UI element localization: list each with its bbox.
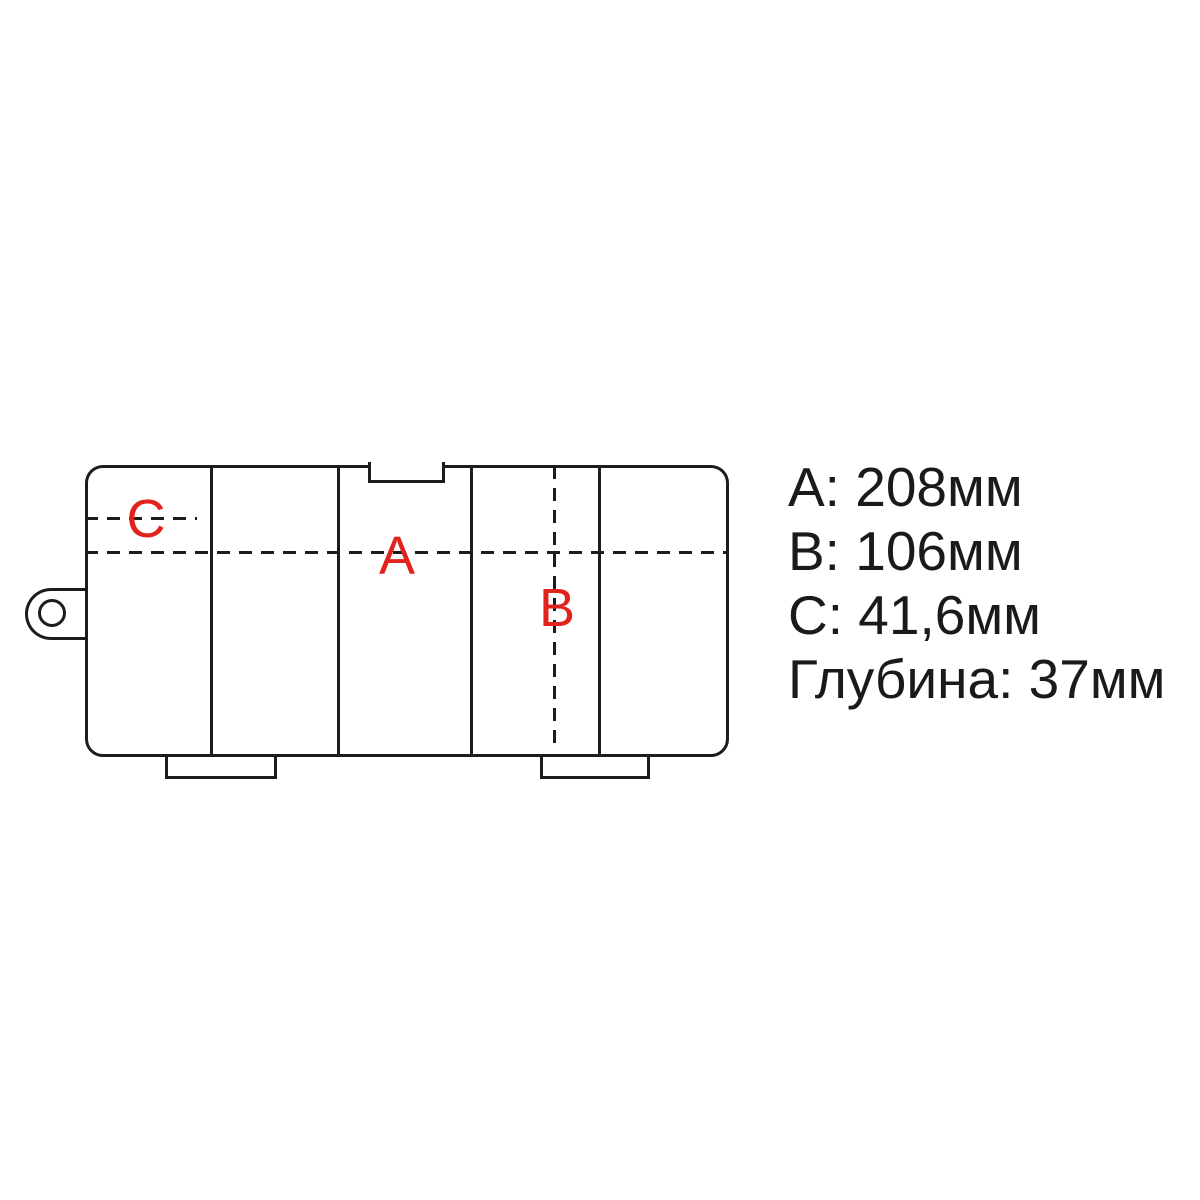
spec-line-a: A: 208мм (788, 455, 1165, 519)
spec-line-b: B: 106мм (788, 519, 1165, 583)
spec-line-c: C: 41,6мм (788, 583, 1165, 647)
bottom-tab-left (165, 756, 277, 779)
compartment-divider-2 (337, 466, 340, 756)
box-outline (85, 465, 729, 757)
dimension-label-b: B (539, 581, 575, 635)
compartment-divider-1 (210, 466, 213, 756)
lid-notch (368, 462, 445, 483)
compartment-divider-3 (470, 466, 473, 756)
dimension-label-a: A (379, 529, 415, 583)
spec-line-depth: Глубина: 37мм (788, 647, 1165, 711)
compartment-divider-4 (598, 466, 601, 756)
dimension-specs: A: 208мм B: 106мм C: 41,6мм Глубина: 37м… (788, 455, 1165, 711)
bottom-tab-right (540, 756, 650, 779)
dimension-diagram: C A B A: 208мм B: 106мм C: 41,6мм Глубин… (0, 0, 1200, 1200)
dimension-label-c: C (127, 492, 166, 546)
hanger-hole-icon (38, 599, 66, 627)
